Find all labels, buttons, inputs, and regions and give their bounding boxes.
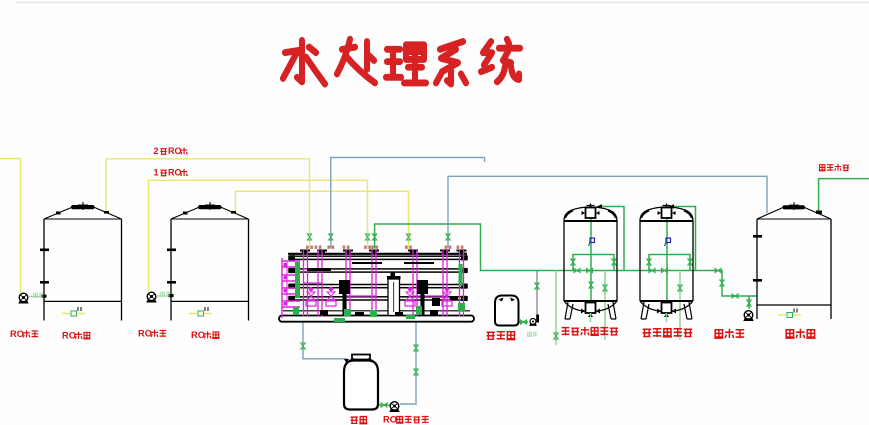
svg-text:RO: RO — [383, 415, 397, 425]
svg-text:RO: RO — [168, 168, 182, 178]
svg-text:RO: RO — [10, 329, 24, 339]
svg-text:RO: RO — [138, 329, 152, 339]
svg-text:RO: RO — [62, 331, 76, 341]
svg-text:RO: RO — [168, 146, 182, 156]
svg-text:1: 1 — [154, 168, 159, 178]
svg-text:RO: RO — [191, 330, 205, 340]
svg-text:2: 2 — [154, 146, 159, 156]
